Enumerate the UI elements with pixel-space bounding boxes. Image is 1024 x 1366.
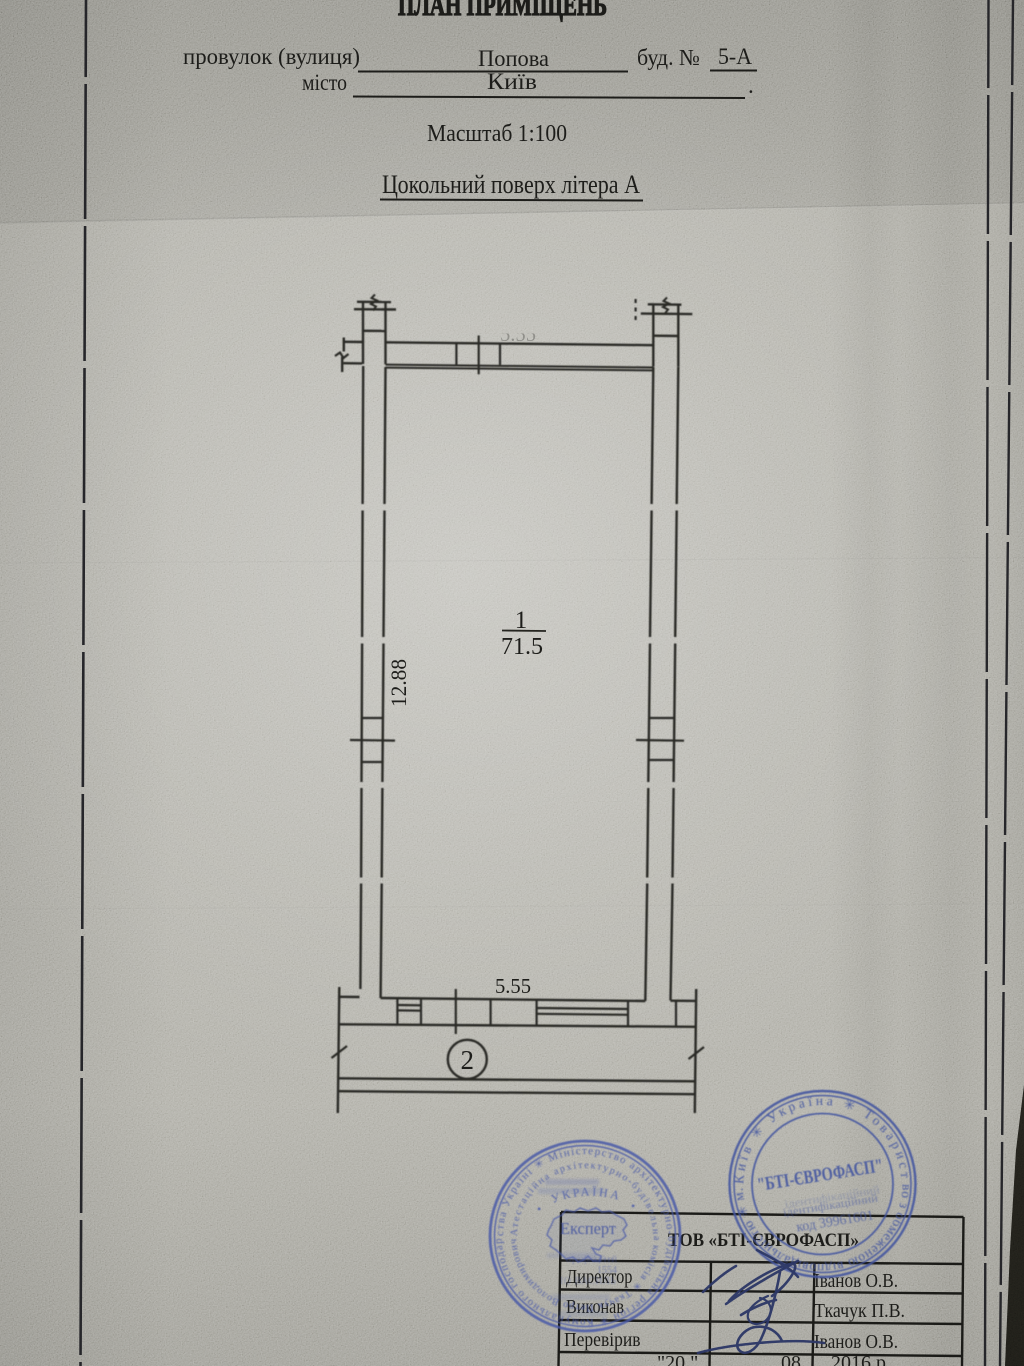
svg-text:ПЛАН ПРИМІЩЕНЬ: ПЛАН ПРИМІЩЕНЬ	[398, 0, 607, 22]
svg-text:•: •	[631, 1199, 635, 1213]
svg-text:Масштаб 1:100: Масштаб 1:100	[427, 121, 567, 147]
svg-text:буд. №: буд. №	[637, 45, 700, 70]
svg-text:12.88: 12.88	[386, 659, 411, 707]
svg-text:Перевірив: Перевірив	[564, 1329, 641, 1351]
svg-text:Експерт: Експерт	[560, 1219, 617, 1238]
svg-text:.: .	[748, 73, 754, 98]
svg-text:2: 2	[461, 1045, 475, 1075]
svg-text:5.55: 5.55	[495, 974, 531, 998]
svg-text:Цокольний поверх літера А: Цокольний поверх літера А	[382, 170, 640, 199]
svg-text:Ткачук П.В.: Ткачук П.В.	[814, 1300, 905, 1322]
svg-text:місто: місто	[302, 70, 347, 95]
svg-text:Іванов О.В.: Іванов О.В.	[814, 1331, 898, 1353]
svg-text:Попова: Попова	[478, 46, 549, 71]
svg-text:08: 08	[781, 1352, 801, 1366]
svg-text:"20 ": "20 "	[657, 1352, 698, 1366]
svg-text:5-А: 5-А	[718, 44, 752, 69]
svg-text:1554: 1554	[597, 1265, 617, 1276]
svg-text:Київ: Київ	[487, 69, 537, 94]
svg-text:•: •	[537, 1202, 541, 1216]
svg-text:ІО ВАСИЛЬ: ІО ВАСИЛЬ	[560, 1276, 616, 1287]
svg-text:провулок (вулиця): провулок (вулиця)	[183, 44, 360, 69]
svg-text:2016 р.: 2016 р.	[831, 1352, 891, 1366]
svg-text:71.5: 71.5	[501, 634, 543, 660]
